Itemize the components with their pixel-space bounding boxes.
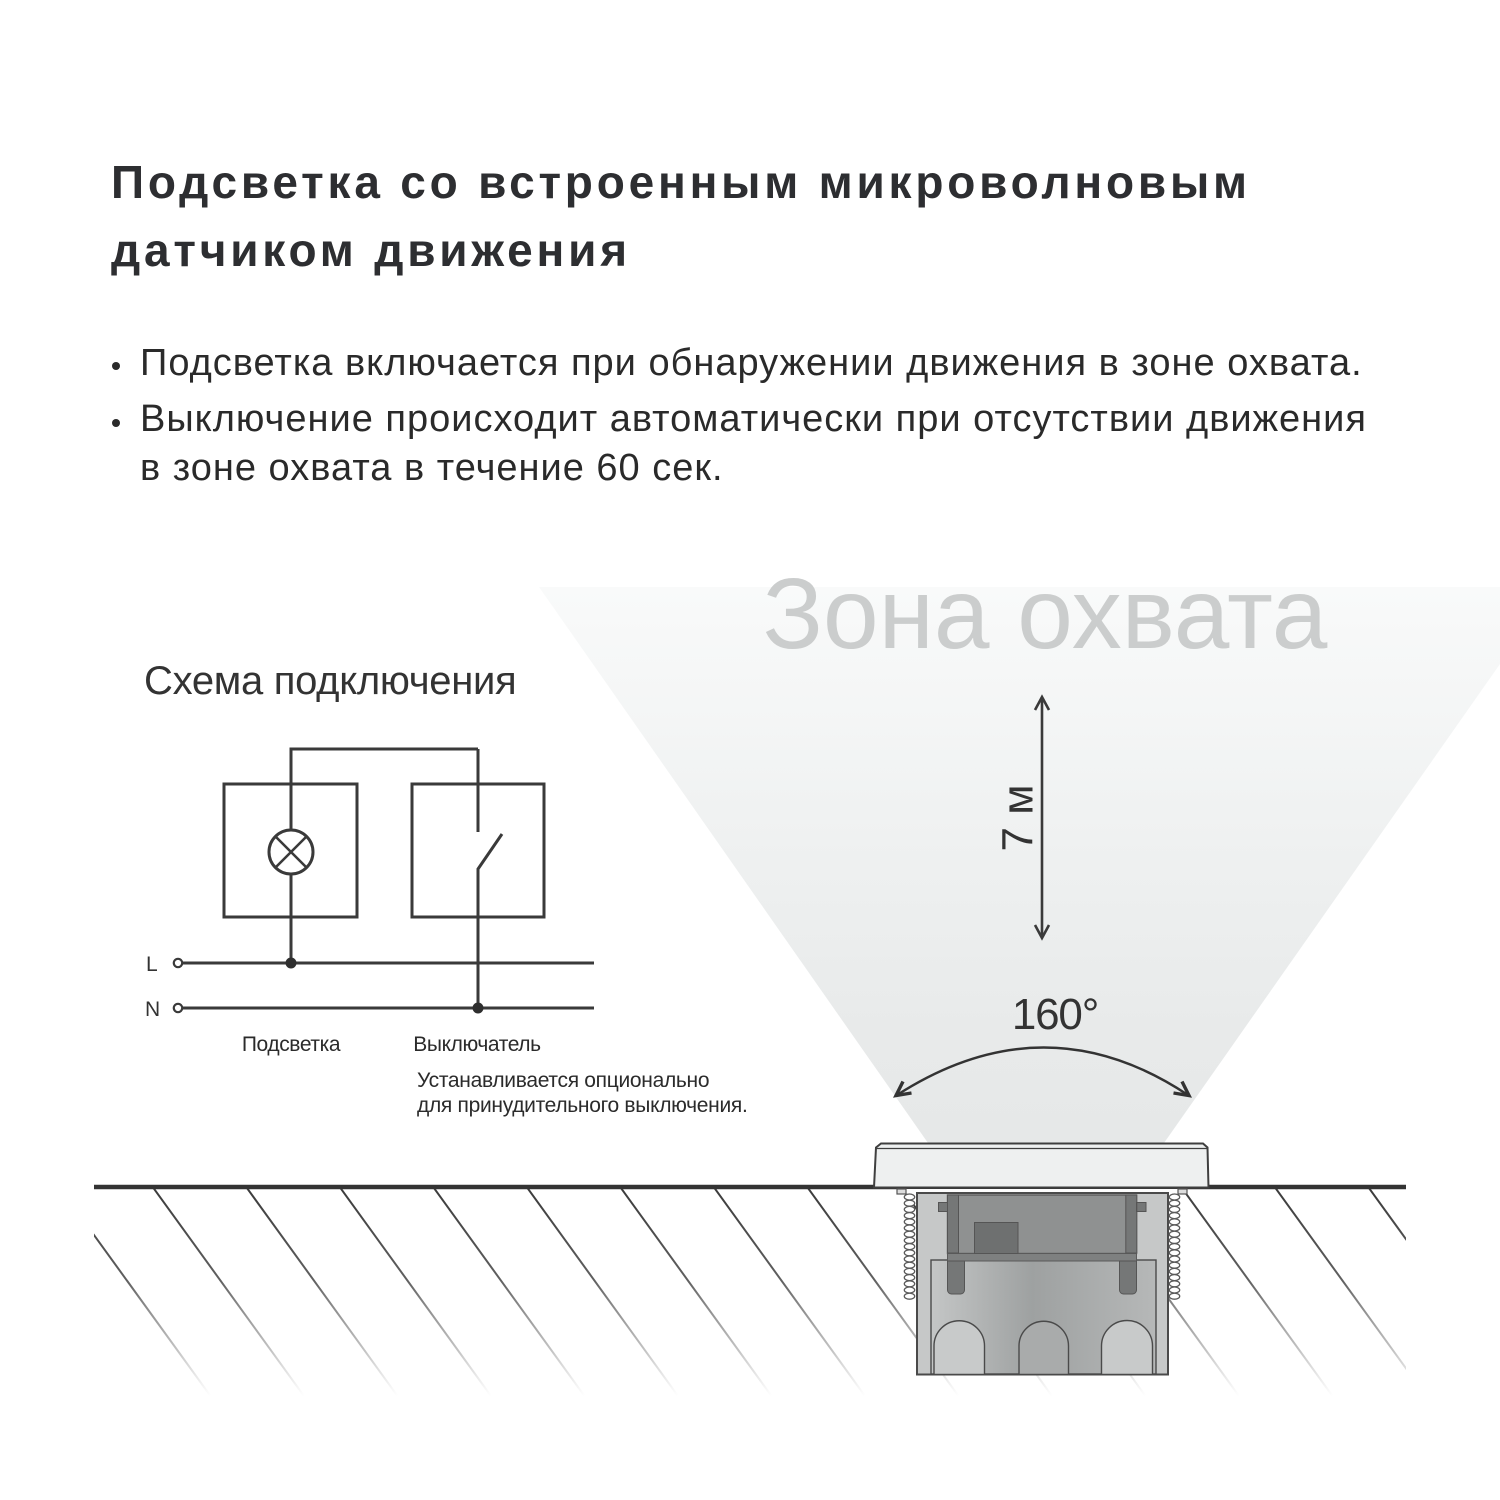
svg-text:160°: 160° bbox=[1012, 990, 1098, 1039]
svg-text:Устанавливается опционально: Устанавливается опционально bbox=[417, 1069, 709, 1092]
svg-text:N: N bbox=[145, 998, 160, 1021]
svg-text:7 м: 7 м bbox=[994, 785, 1043, 852]
svg-text:L: L bbox=[146, 953, 158, 976]
svg-text:Подсветка: Подсветка bbox=[242, 1033, 341, 1056]
svg-text:Зона охвата: Зона охвата bbox=[763, 558, 1328, 670]
svg-text:для принудительного выключения: для принудительного выключения. bbox=[417, 1094, 748, 1117]
svg-text:Выключатель: Выключатель bbox=[413, 1033, 541, 1056]
